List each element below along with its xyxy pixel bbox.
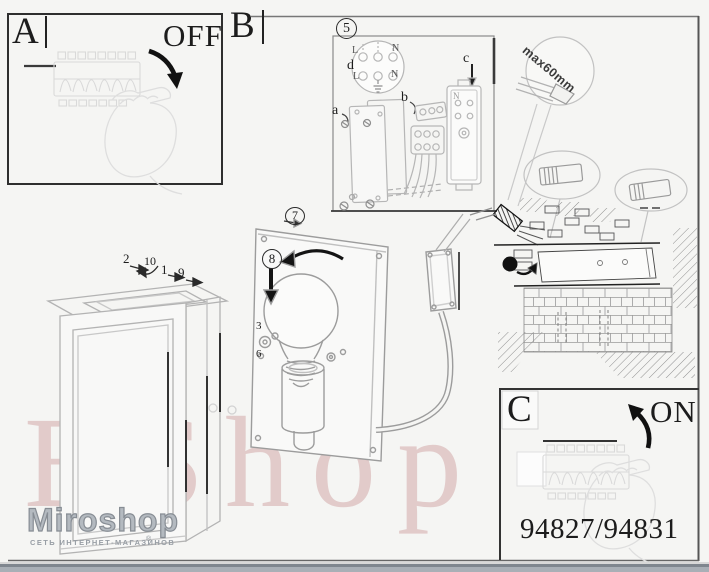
part-c-label: c bbox=[463, 52, 469, 66]
bulb-installation bbox=[251, 214, 470, 461]
panel-c-label: C bbox=[507, 391, 532, 428]
off-arrow-icon bbox=[167, 72, 183, 89]
watermark-store-logo: Miroshop bbox=[27, 504, 179, 536]
cable-entry-dot bbox=[503, 257, 518, 272]
part-a-label: a bbox=[332, 104, 338, 118]
panel-a-label: A bbox=[12, 13, 39, 50]
step-8-badge: 8 bbox=[262, 249, 282, 269]
callout-10: 10 bbox=[144, 255, 156, 267]
junction-box-terminal-label: N bbox=[453, 92, 460, 101]
line-artwork bbox=[0, 0, 709, 572]
model-numbers: 94827/94831 bbox=[520, 515, 679, 544]
callout-9: 9 bbox=[178, 266, 185, 279]
panel-b-label: B bbox=[230, 7, 255, 44]
callout-1: 1 bbox=[161, 263, 168, 276]
wall-cross-section bbox=[494, 198, 697, 378]
watermark-store-tagline: СЕТЬ ИНТЕРНЕТ-МАГАЗИНОВ bbox=[30, 538, 175, 547]
terminal-neutral-top: N bbox=[392, 44, 399, 54]
terminal-neutral-bottom: N bbox=[391, 70, 398, 80]
registered-mark: ® bbox=[146, 536, 151, 543]
instruction-sheet: BShop bbox=[0, 0, 709, 572]
scan-edge-band-light bbox=[0, 567, 709, 572]
callout-2: 2 bbox=[123, 252, 130, 265]
wall-mounting-details bbox=[470, 37, 697, 378]
step-7-badge: 7 bbox=[285, 207, 305, 225]
wiring-exploded-view bbox=[331, 36, 497, 211]
callout-6: 6 bbox=[256, 349, 262, 360]
terminal-live-bottom: L bbox=[353, 72, 359, 82]
step-5-badge: 5 bbox=[336, 18, 357, 39]
breaker-off-drawing bbox=[24, 51, 183, 194]
part-b-label: b bbox=[401, 91, 408, 105]
off-status-label: OFF bbox=[163, 20, 223, 51]
on-status-label: ON bbox=[650, 396, 697, 427]
callout-3: 3 bbox=[256, 321, 262, 332]
terminal-live-top: L bbox=[352, 46, 358, 56]
